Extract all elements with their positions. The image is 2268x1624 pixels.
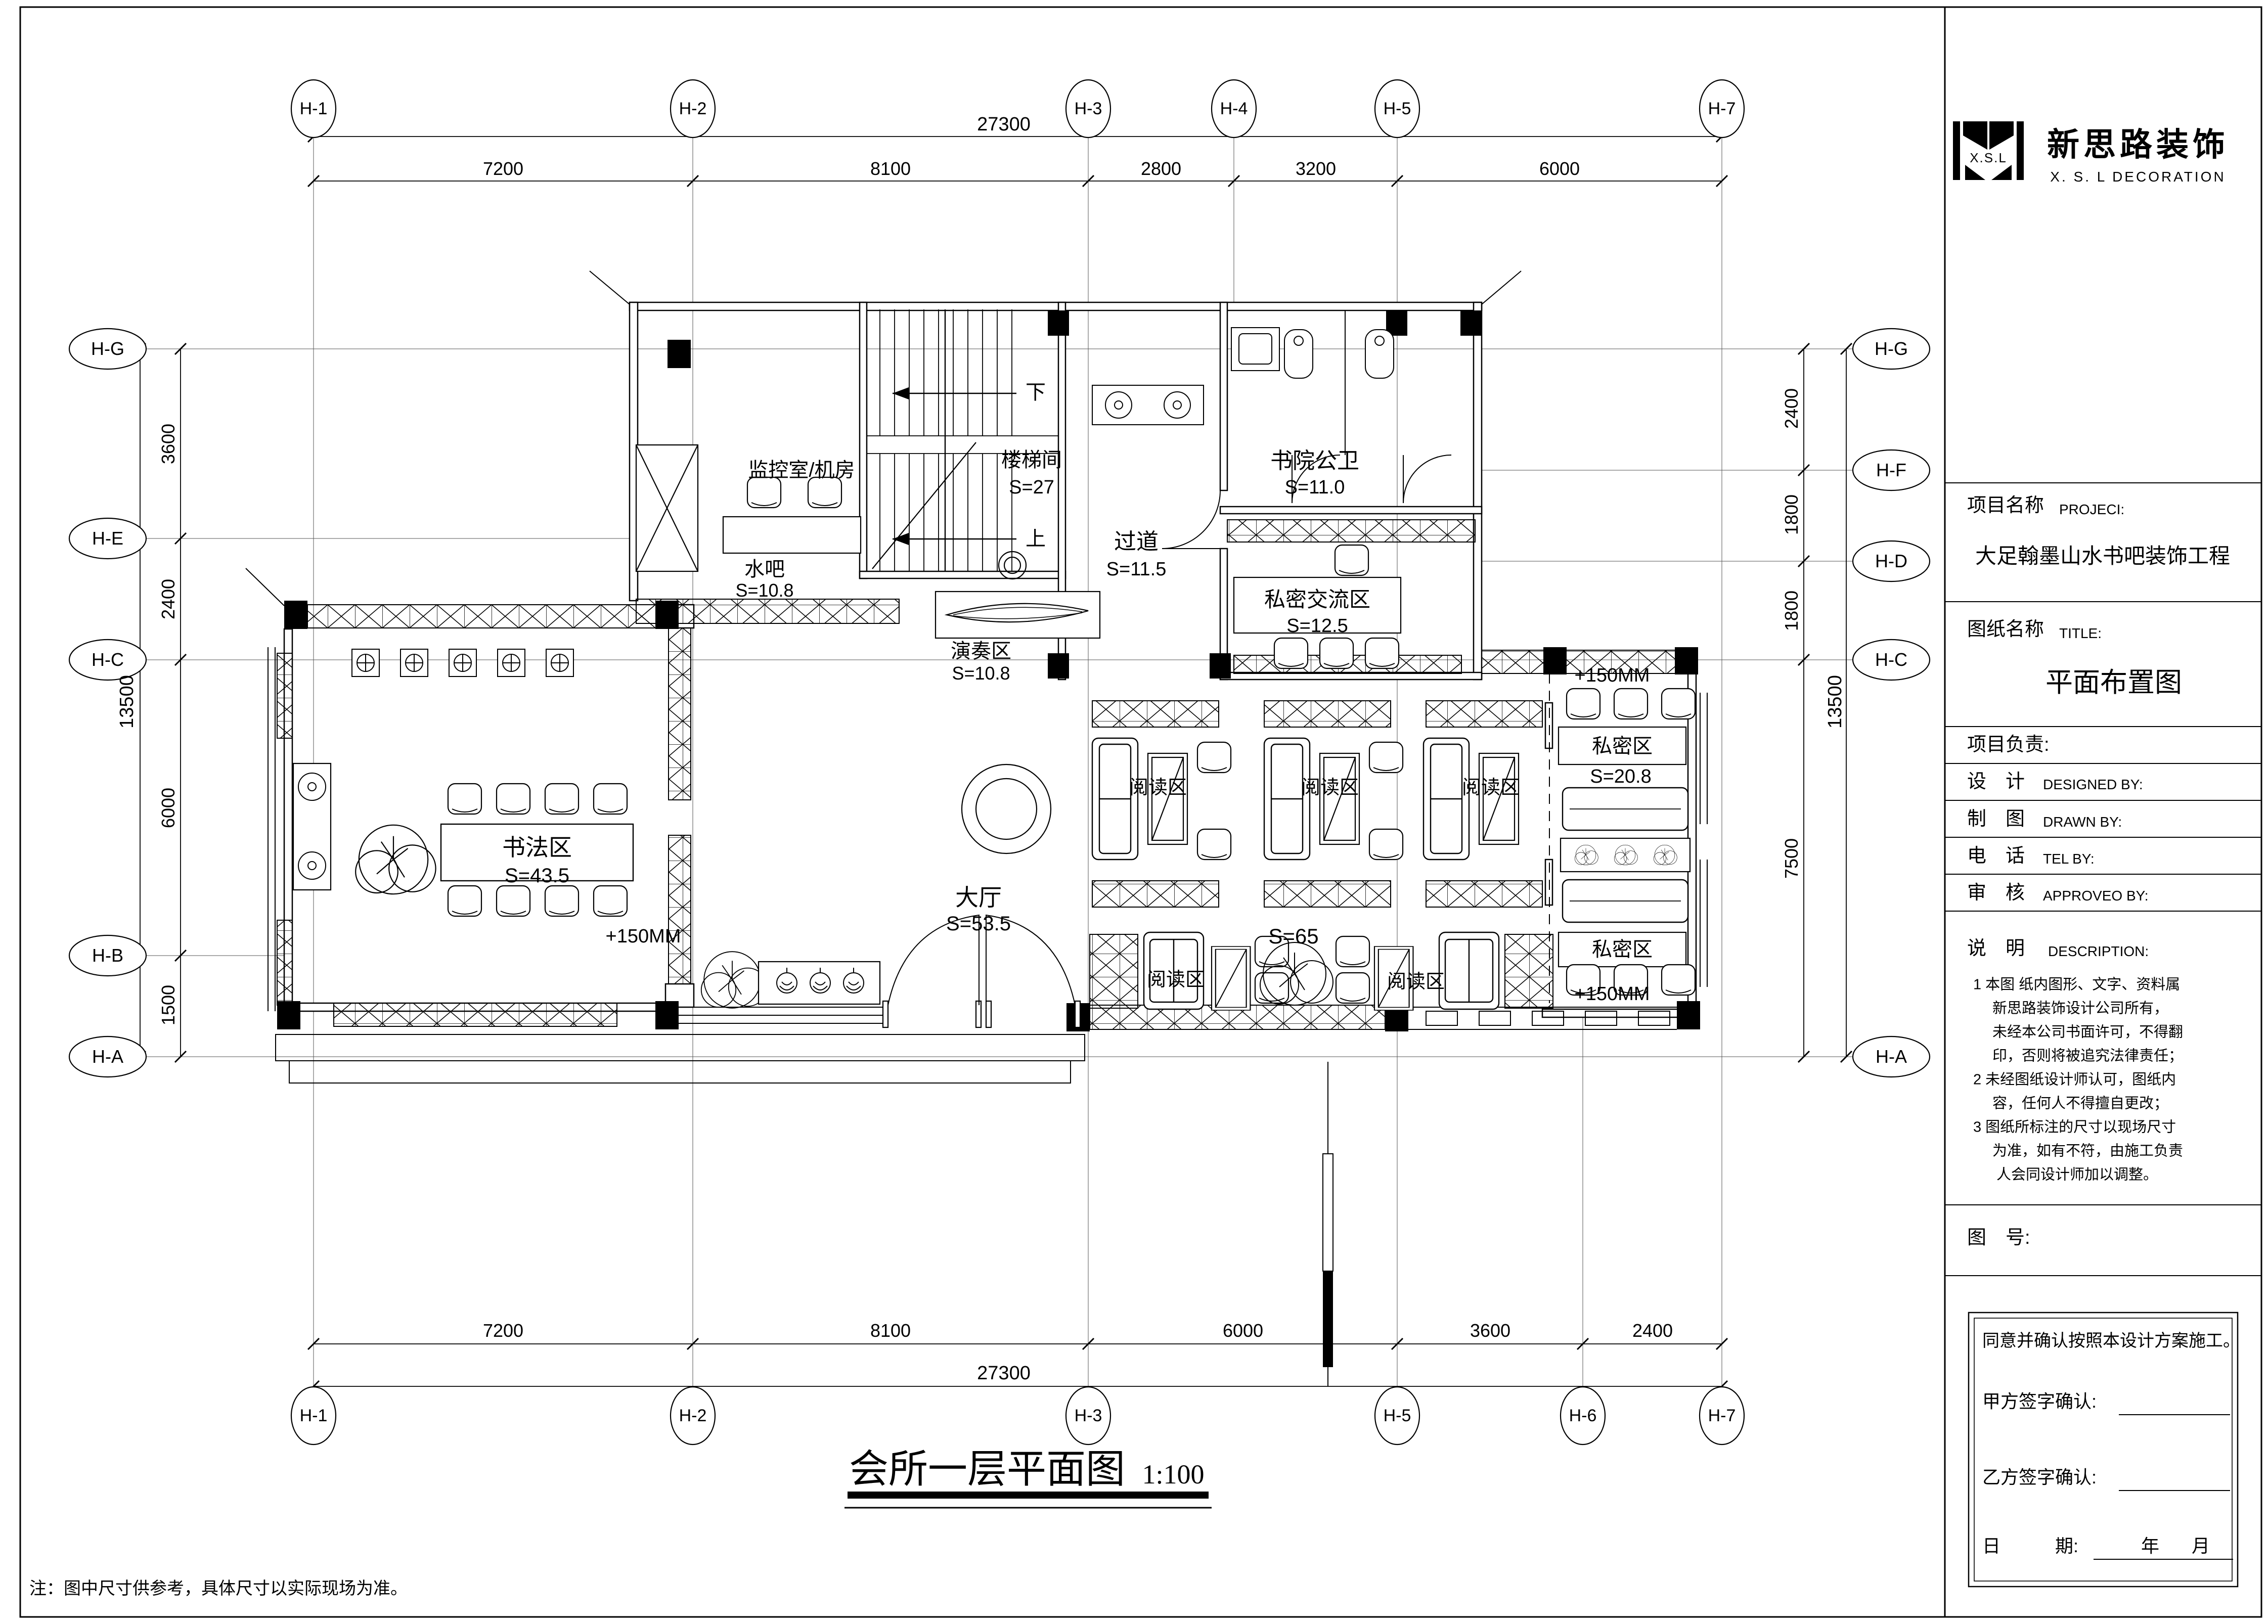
tb-draft-label: 制 图 bbox=[1967, 809, 2025, 829]
floorplan-linework bbox=[0, 0, 2268, 1624]
room-label-reading: 阅读区 bbox=[1147, 970, 1205, 989]
room-label-reading: 阅读区 bbox=[1129, 778, 1187, 797]
room-area-hall: S=53.5 bbox=[946, 914, 1011, 934]
room-area-private-meet: S=12.5 bbox=[1286, 616, 1348, 636]
dim: 6000 bbox=[1539, 160, 1580, 178]
tb-date-year: 年 bbox=[2141, 1537, 2159, 1555]
grid-label: H-E bbox=[92, 529, 123, 548]
room-label-reading: 阅读区 bbox=[1387, 972, 1445, 991]
hall-center bbox=[962, 764, 1051, 853]
room-area-stair: S=27 bbox=[1009, 478, 1054, 497]
tb-sig-party-a: 甲方签字确认: bbox=[1982, 1392, 2097, 1411]
tb-desc-label-en: DESCRIPTION: bbox=[2048, 944, 2149, 959]
tb-desc-label: 说 明 bbox=[1967, 939, 2025, 958]
grid-label: H-3 bbox=[1075, 1407, 1102, 1424]
room-label-waterbar: 水吧 bbox=[744, 559, 785, 579]
grid-label: H-A bbox=[1876, 1048, 1907, 1066]
tb-project-label-en: PROJECI: bbox=[2059, 503, 2124, 517]
grid-label: H-2 bbox=[679, 1407, 707, 1424]
plan-scale: 1:100 bbox=[1142, 1461, 1204, 1488]
grid-label: H-2 bbox=[679, 100, 707, 117]
grid-label: H-5 bbox=[1384, 100, 1411, 117]
calligraphy-furniture bbox=[293, 649, 633, 916]
tb-date-label: 日 期: bbox=[1982, 1537, 2078, 1555]
tb-drawing-label: 图纸名称 bbox=[1967, 620, 2044, 639]
dim: 3600 bbox=[1470, 1322, 1510, 1340]
room-label-hall: 大厅 bbox=[955, 886, 1002, 909]
grid-label: H-7 bbox=[1708, 1407, 1736, 1424]
logo-xsl-text: X.S.L bbox=[1970, 151, 2007, 164]
grid-label: H-C bbox=[1875, 651, 1907, 669]
grid-label: H-7 bbox=[1708, 100, 1736, 117]
tb-note-line: 3 图纸所标注的尺寸以现场尺寸 bbox=[1973, 1120, 2176, 1135]
room-label-toilet: 书院公卫 bbox=[1270, 450, 1359, 472]
dim-total-top: 27300 bbox=[977, 115, 1031, 134]
grid-label: H-A bbox=[92, 1048, 123, 1066]
room-label-private: 私密区 bbox=[1592, 736, 1653, 756]
reading-groups-middle bbox=[1092, 738, 1519, 860]
tb-drawing-label-en: TITLE: bbox=[2059, 626, 2102, 641]
tb-review-label-en: APPROVEO BY: bbox=[2043, 889, 2149, 903]
dim: 6000 bbox=[1223, 1322, 1263, 1340]
grid-label: H-6 bbox=[1569, 1407, 1597, 1424]
room-label-private: 私密区 bbox=[1592, 939, 1653, 960]
dim: 7200 bbox=[483, 160, 523, 178]
room-label-monitor: 监控室/机房 bbox=[748, 460, 855, 480]
room-label-stair: 楼梯间 bbox=[1001, 450, 1062, 470]
grid-label: H-3 bbox=[1075, 100, 1102, 117]
grid-label: H-C bbox=[92, 651, 124, 669]
grid-label: H-D bbox=[1875, 552, 1907, 570]
tb-tel-label: 电 话 bbox=[1967, 846, 2025, 866]
dim-total-left: 13500 bbox=[117, 675, 137, 729]
tb-project-name: 大足翰墨山水书吧装饰工程 bbox=[1975, 546, 2230, 567]
room-area-stage: S=10.8 bbox=[952, 664, 1010, 683]
level-annotation: +150MM bbox=[1575, 666, 1650, 685]
dim: 7500 bbox=[1783, 838, 1801, 879]
plan-title-underline bbox=[844, 1492, 1212, 1508]
tb-note-line: 容，任何人不得擅自更改； bbox=[1992, 1097, 2168, 1111]
room-label-private-meet: 私密交流区 bbox=[1264, 589, 1370, 610]
logo-company-name-en: X. S. L DECORATION bbox=[2050, 170, 2226, 184]
logo-company-name: 新思路装饰 bbox=[2047, 128, 2229, 161]
tb-note-line: 人会同设计师加以调整。 bbox=[1996, 1168, 2158, 1183]
room-area-waterbar: S=10.8 bbox=[735, 581, 793, 600]
tb-note-line: 2 未经图纸设计师认可，图纸内 bbox=[1973, 1073, 2176, 1088]
dim: 1800 bbox=[1783, 494, 1801, 535]
room-area-calligraphy: S=43.5 bbox=[505, 866, 569, 886]
dim: 3600 bbox=[159, 424, 177, 464]
room-label-reading: 阅读区 bbox=[1301, 778, 1359, 797]
tb-review-label: 审 核 bbox=[1967, 883, 2025, 903]
tb-note-line: 新思路装饰设计公司所有， bbox=[1992, 1002, 2168, 1016]
room-area-toilet: S=11.0 bbox=[1285, 478, 1345, 497]
dim: 2400 bbox=[1632, 1322, 1673, 1340]
tb-design-label-en: DESIGNED BY: bbox=[2043, 778, 2143, 792]
dim: 2800 bbox=[1141, 160, 1181, 178]
tb-note-line: 未经本公司书面许可，不得翻 bbox=[1992, 1025, 2183, 1040]
dim: 8100 bbox=[870, 160, 911, 178]
grid-label: H-F bbox=[1876, 461, 1906, 479]
toilet-fixtures bbox=[1231, 310, 1451, 503]
tb-note-line: 为准，如有不符，由施工负责 bbox=[1992, 1144, 2183, 1159]
room-area-private: S=20.8 bbox=[1590, 767, 1652, 786]
grid-label: H-1 bbox=[300, 1407, 328, 1424]
sheet-frame bbox=[20, 7, 2261, 1617]
dim: 2400 bbox=[159, 579, 177, 619]
tb-note-line: 印，否则将被追究法律责任； bbox=[1992, 1049, 2183, 1064]
plan-title: 会所一层平面图 bbox=[849, 1450, 1125, 1489]
tb-note-line: 1 本图 纸内图形、文字、资料属 bbox=[1973, 978, 2180, 993]
tb-drawing-name: 平面布置图 bbox=[2045, 669, 2182, 696]
stair-up-label: 上 bbox=[1026, 529, 1046, 549]
dim-total-bottom: 27300 bbox=[977, 1364, 1031, 1383]
room-area-hall-east: S=65 bbox=[1268, 926, 1318, 947]
stair-down-label: 下 bbox=[1026, 382, 1046, 402]
room-label-corridor: 过道 bbox=[1114, 531, 1159, 553]
tb-date-month: 月 bbox=[2192, 1537, 2210, 1555]
dim: 8100 bbox=[870, 1322, 911, 1340]
level-annotation: +150MM bbox=[1575, 984, 1650, 1004]
tb-pm-label: 项目负责: bbox=[1967, 735, 2050, 754]
hall-entrance-deco bbox=[701, 915, 1080, 1027]
tb-tel-label-en: TEL BY: bbox=[2043, 852, 2095, 866]
room-area-corridor: S=11.5 bbox=[1106, 560, 1167, 579]
grid-label: H-G bbox=[1875, 340, 1908, 358]
room-label-calligraphy: 书法区 bbox=[502, 836, 572, 859]
dim: 1800 bbox=[1783, 591, 1801, 631]
grid-label: H-4 bbox=[1220, 100, 1248, 117]
stage-area bbox=[936, 552, 1100, 638]
tb-project-label: 项目名称 bbox=[1967, 496, 2044, 515]
room-label-stage: 演奏区 bbox=[951, 641, 1011, 661]
grid-label: H-1 bbox=[300, 100, 328, 117]
drawing-sheet: H-1 H-2 H-3 H-4 H-5 H-7 H-1 H-2 H-3 H-5 … bbox=[0, 0, 2268, 1624]
section-marker bbox=[1323, 1062, 1333, 1386]
grid-label: H-G bbox=[91, 340, 124, 358]
room-label-reading: 阅读区 bbox=[1462, 778, 1520, 797]
dim: 7200 bbox=[483, 1322, 523, 1340]
dim-total-right: 13500 bbox=[1826, 675, 1845, 729]
sheet-footnote: 注：图中尺寸供参考，具体尺寸以实际现场为准。 bbox=[29, 1580, 408, 1597]
tb-sig-statement: 同意并确认按照本设计方案施工。 bbox=[1982, 1332, 2240, 1349]
dim: 1500 bbox=[159, 985, 177, 1025]
tb-design-label: 设 计 bbox=[1967, 772, 2025, 791]
tb-draft-label-en: DRAWN BY: bbox=[2043, 815, 2122, 829]
tb-sig-party-b: 乙方签字确认: bbox=[1982, 1468, 2097, 1486]
corridor-elements bbox=[1092, 385, 1220, 549]
grid-label: H-B bbox=[92, 946, 123, 965]
dim: 3200 bbox=[1296, 160, 1336, 178]
level-annotation: +150MM bbox=[606, 927, 681, 946]
dim: 6000 bbox=[159, 788, 177, 828]
dim: 2400 bbox=[1783, 388, 1801, 429]
tb-fig-label: 图 号: bbox=[1967, 1228, 2030, 1247]
grid-label: H-5 bbox=[1384, 1407, 1411, 1424]
